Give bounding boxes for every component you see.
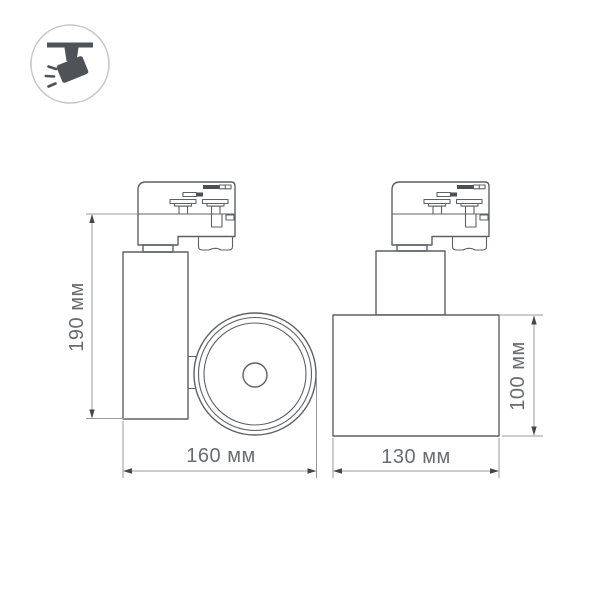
dimension-label: 100 мм	[507, 341, 529, 410]
arrowhead-icon	[333, 468, 342, 473]
track-adapter	[138, 182, 235, 250]
dimension-side-height: 190 мм	[66, 214, 138, 419]
arrowhead-icon	[89, 214, 94, 223]
technical-drawing: 190 мм 160 мм 130 мм 100 мм	[0, 0, 600, 600]
spot-head-glyph	[56, 55, 89, 83]
track-spotlight-icon	[31, 25, 109, 103]
dimension-label: 130 мм	[381, 446, 450, 468]
adapter-neck	[397, 245, 427, 251]
arrowhead-icon	[490, 468, 499, 473]
side-view	[123, 182, 316, 435]
arrowhead-icon	[89, 410, 94, 419]
arrowhead-icon	[123, 468, 132, 473]
lamp-body-front	[333, 315, 499, 436]
arrowhead-icon	[531, 316, 536, 325]
lamp-body-side	[123, 252, 188, 419]
dimension-front-width: 130 мм	[333, 438, 499, 478]
dimension-label: 160 мм	[186, 445, 255, 467]
front-view	[333, 182, 499, 436]
dimension-front-height: 100 мм	[499, 315, 543, 436]
lens-outer-ring	[194, 313, 316, 435]
lamp-stem	[376, 251, 445, 315]
drawing-page: 190 мм 160 мм 130 мм 100 мм	[0, 0, 600, 600]
lens-face	[194, 313, 316, 435]
track-adapter	[392, 182, 489, 250]
arrowhead-icon	[308, 468, 317, 473]
arrowhead-icon	[531, 427, 536, 436]
dimension-label: 190 мм	[66, 282, 88, 351]
light-rays-icon	[46, 67, 56, 87]
adapter-neck	[143, 245, 173, 252]
track-bar-glyph	[47, 43, 93, 48]
